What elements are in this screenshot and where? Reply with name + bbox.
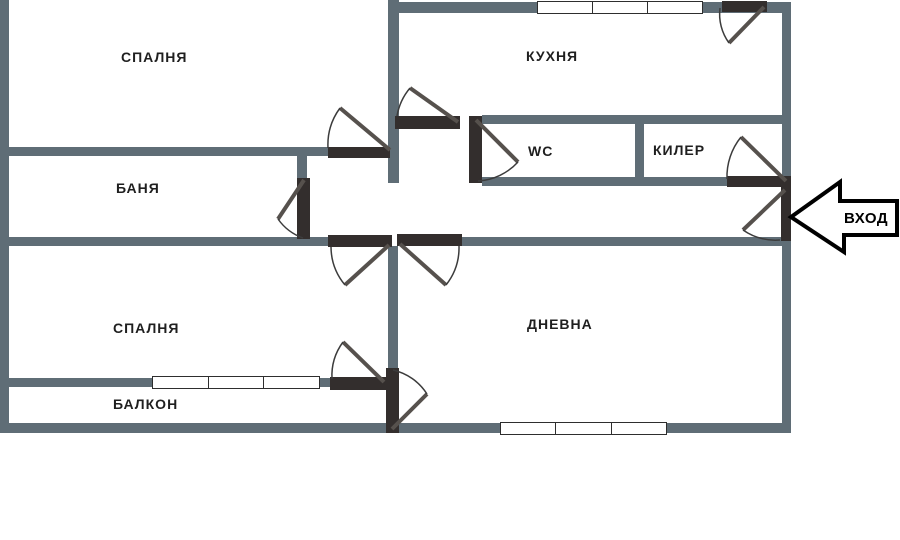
wall-bedroom-bottom-right (320, 378, 330, 387)
wc-door-swing (476, 120, 518, 181)
window-pane (538, 2, 592, 13)
kitchen-terrace-door-bar (722, 1, 767, 12)
bedroom-bottom-door-bar (328, 235, 392, 247)
window-pane (501, 423, 555, 434)
bedroom-bottom-door-swing (331, 245, 389, 285)
room-label-balcony: БАЛКОН (113, 396, 178, 412)
bedroom-bottom-window (152, 376, 320, 389)
wall-right-lower (782, 240, 791, 433)
wc-door-bar (469, 116, 482, 183)
bathroom-door-bar (297, 178, 310, 239)
pantry-door-swing (727, 137, 786, 181)
wall-hall-bottom-right (462, 237, 782, 246)
wall-pantry-bottom (644, 177, 727, 186)
window-pane (647, 2, 702, 13)
entrance-door-bar (781, 186, 791, 241)
window-pane (611, 423, 666, 434)
bedroom-balcony-door-bar (330, 377, 387, 390)
kitchen-door-bar (395, 116, 460, 129)
wall-bathroom-right-stub (297, 156, 307, 179)
living-balcony-door-bar (386, 368, 399, 433)
window-pane (555, 423, 610, 434)
living-room-door-swing (400, 244, 459, 285)
room-label-bedroom-top: СПАЛНЯ (121, 49, 187, 65)
room-label-living-room: ДНЕВНА (527, 316, 593, 332)
living-room-window (500, 422, 667, 435)
floor-plan: СПАЛНЯ КУХНЯ БАНЯ WC КИЛЕР СПАЛНЯ БАЛКОН… (0, 0, 900, 540)
wall-hall-bottom-left (0, 237, 328, 246)
kitchen-window (537, 1, 703, 14)
entrance-label: ВХОД (844, 210, 898, 227)
wall-left-exterior (0, 0, 9, 433)
room-label-wc: WC (528, 143, 553, 159)
room-label-bedroom-bottom: СПАЛНЯ (113, 320, 179, 336)
wall-right-upper (782, 2, 791, 178)
bedroom-top-door-swing (328, 108, 390, 150)
entrance-door-swing (743, 190, 785, 240)
door-swings-layer (0, 0, 900, 540)
room-label-pantry: КИЛЕР (653, 142, 705, 158)
wall-divider-bedroom-living (388, 246, 398, 368)
wall-bedroom-bottom-left (0, 378, 152, 387)
window-pane (208, 377, 264, 388)
window-pane (263, 377, 319, 388)
wall-kitchen-bottom (482, 115, 782, 124)
bedroom-balcony-door-swing (332, 342, 384, 382)
living-room-door-bar (397, 234, 462, 246)
room-label-kitchen: КУХНЯ (526, 48, 578, 64)
wall-wc-pantry-divider (635, 115, 644, 186)
wall-bedroom-top-bottom (0, 147, 330, 156)
room-label-bathroom: БАНЯ (116, 180, 160, 196)
wall-wc-bottom (482, 177, 635, 186)
window-pane (153, 377, 208, 388)
bedroom-top-door-bar (328, 147, 390, 158)
window-pane (592, 2, 647, 13)
